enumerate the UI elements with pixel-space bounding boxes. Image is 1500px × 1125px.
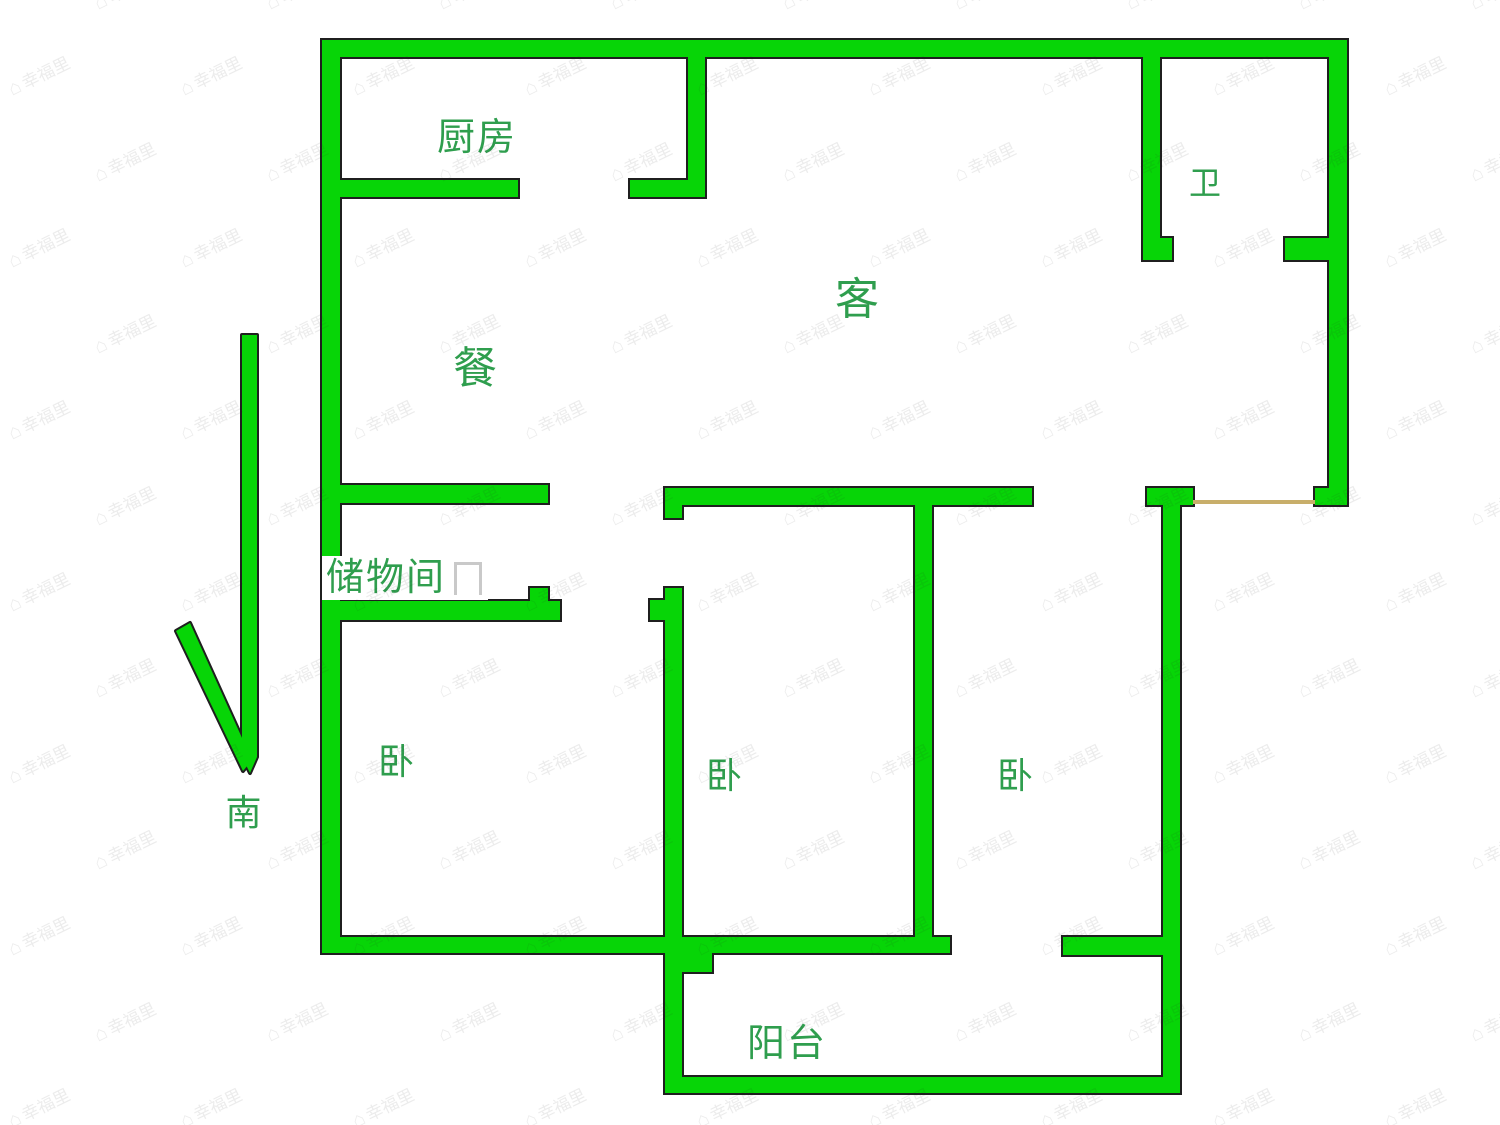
floorplan-canvas: 厨房卫客餐储物间卧卧卧阳台 南 ⌂幸福里⌂幸福里⌂幸福里⌂幸福里⌂幸福里⌂幸福里…: [0, 0, 1500, 1125]
wall-segment: [1285, 238, 1331, 260]
wall-segment: [530, 588, 548, 603]
wall-segment: [678, 952, 712, 972]
wall-segment: [1143, 53, 1160, 243]
south-direction-label: 南: [225, 795, 262, 831]
wall-segment: [688, 53, 705, 197]
window-line: [1193, 500, 1315, 504]
window-lines: [1193, 500, 1315, 504]
wall-segment: [336, 601, 560, 620]
wall-outlines: [322, 40, 1347, 1093]
wall-segment: [322, 40, 1347, 57]
wall-segment: [1063, 937, 1180, 955]
wall-segment: [650, 600, 668, 620]
wall-segment: [665, 588, 682, 1093]
wall-segment: [336, 485, 548, 503]
wall-segment: [665, 488, 1032, 505]
wall-segment: [1163, 500, 1180, 1093]
wall-segment: [336, 180, 518, 197]
floorplan-drawing: [0, 0, 1500, 1125]
wall-segment: [1143, 238, 1172, 260]
wall-segment: [1315, 488, 1347, 505]
south-arrow: [176, 335, 257, 773]
wall-segment: [665, 503, 682, 518]
wall-segment: [665, 1077, 1180, 1093]
wall-segment: [630, 180, 692, 197]
south-arrow-shape: [242, 335, 257, 773]
wall-segment: [322, 937, 950, 953]
wall-segment: [1329, 40, 1347, 505]
wall-segment: [915, 498, 932, 953]
